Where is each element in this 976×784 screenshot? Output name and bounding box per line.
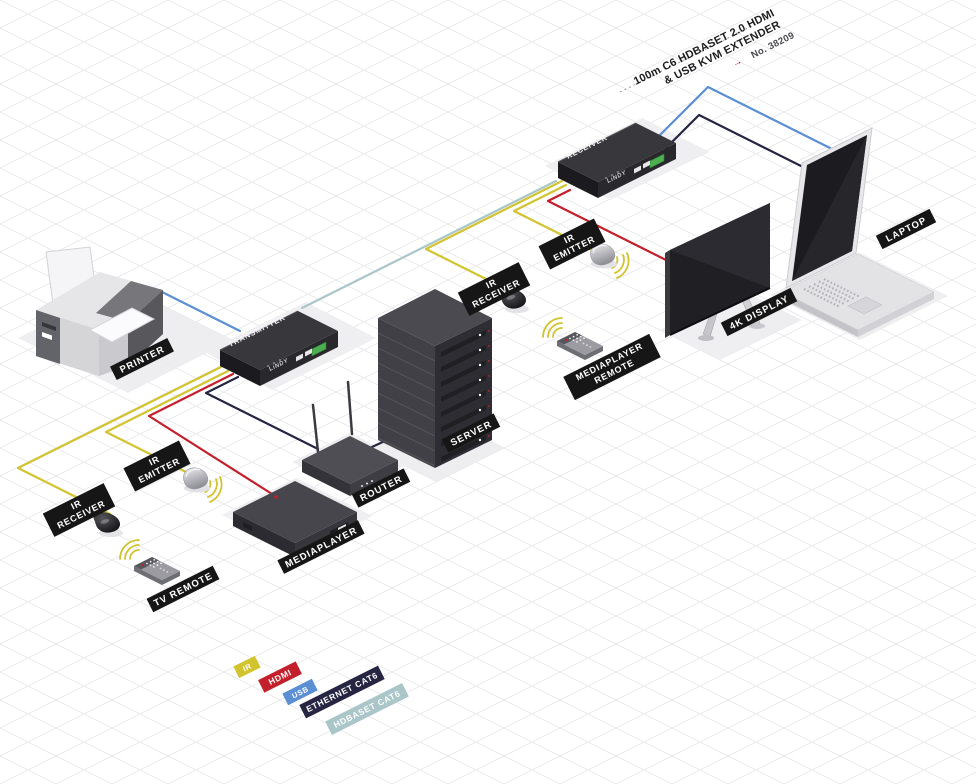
kvm-extender-diagram: TRANSMITTER LiNDY RECEIVER LiNDY [0, 0, 976, 784]
mediaplayer-led [274, 495, 278, 499]
diagram-canvas: TRANSMITTER LiNDY RECEIVER LiNDY [0, 0, 976, 784]
server-device [378, 289, 492, 468]
